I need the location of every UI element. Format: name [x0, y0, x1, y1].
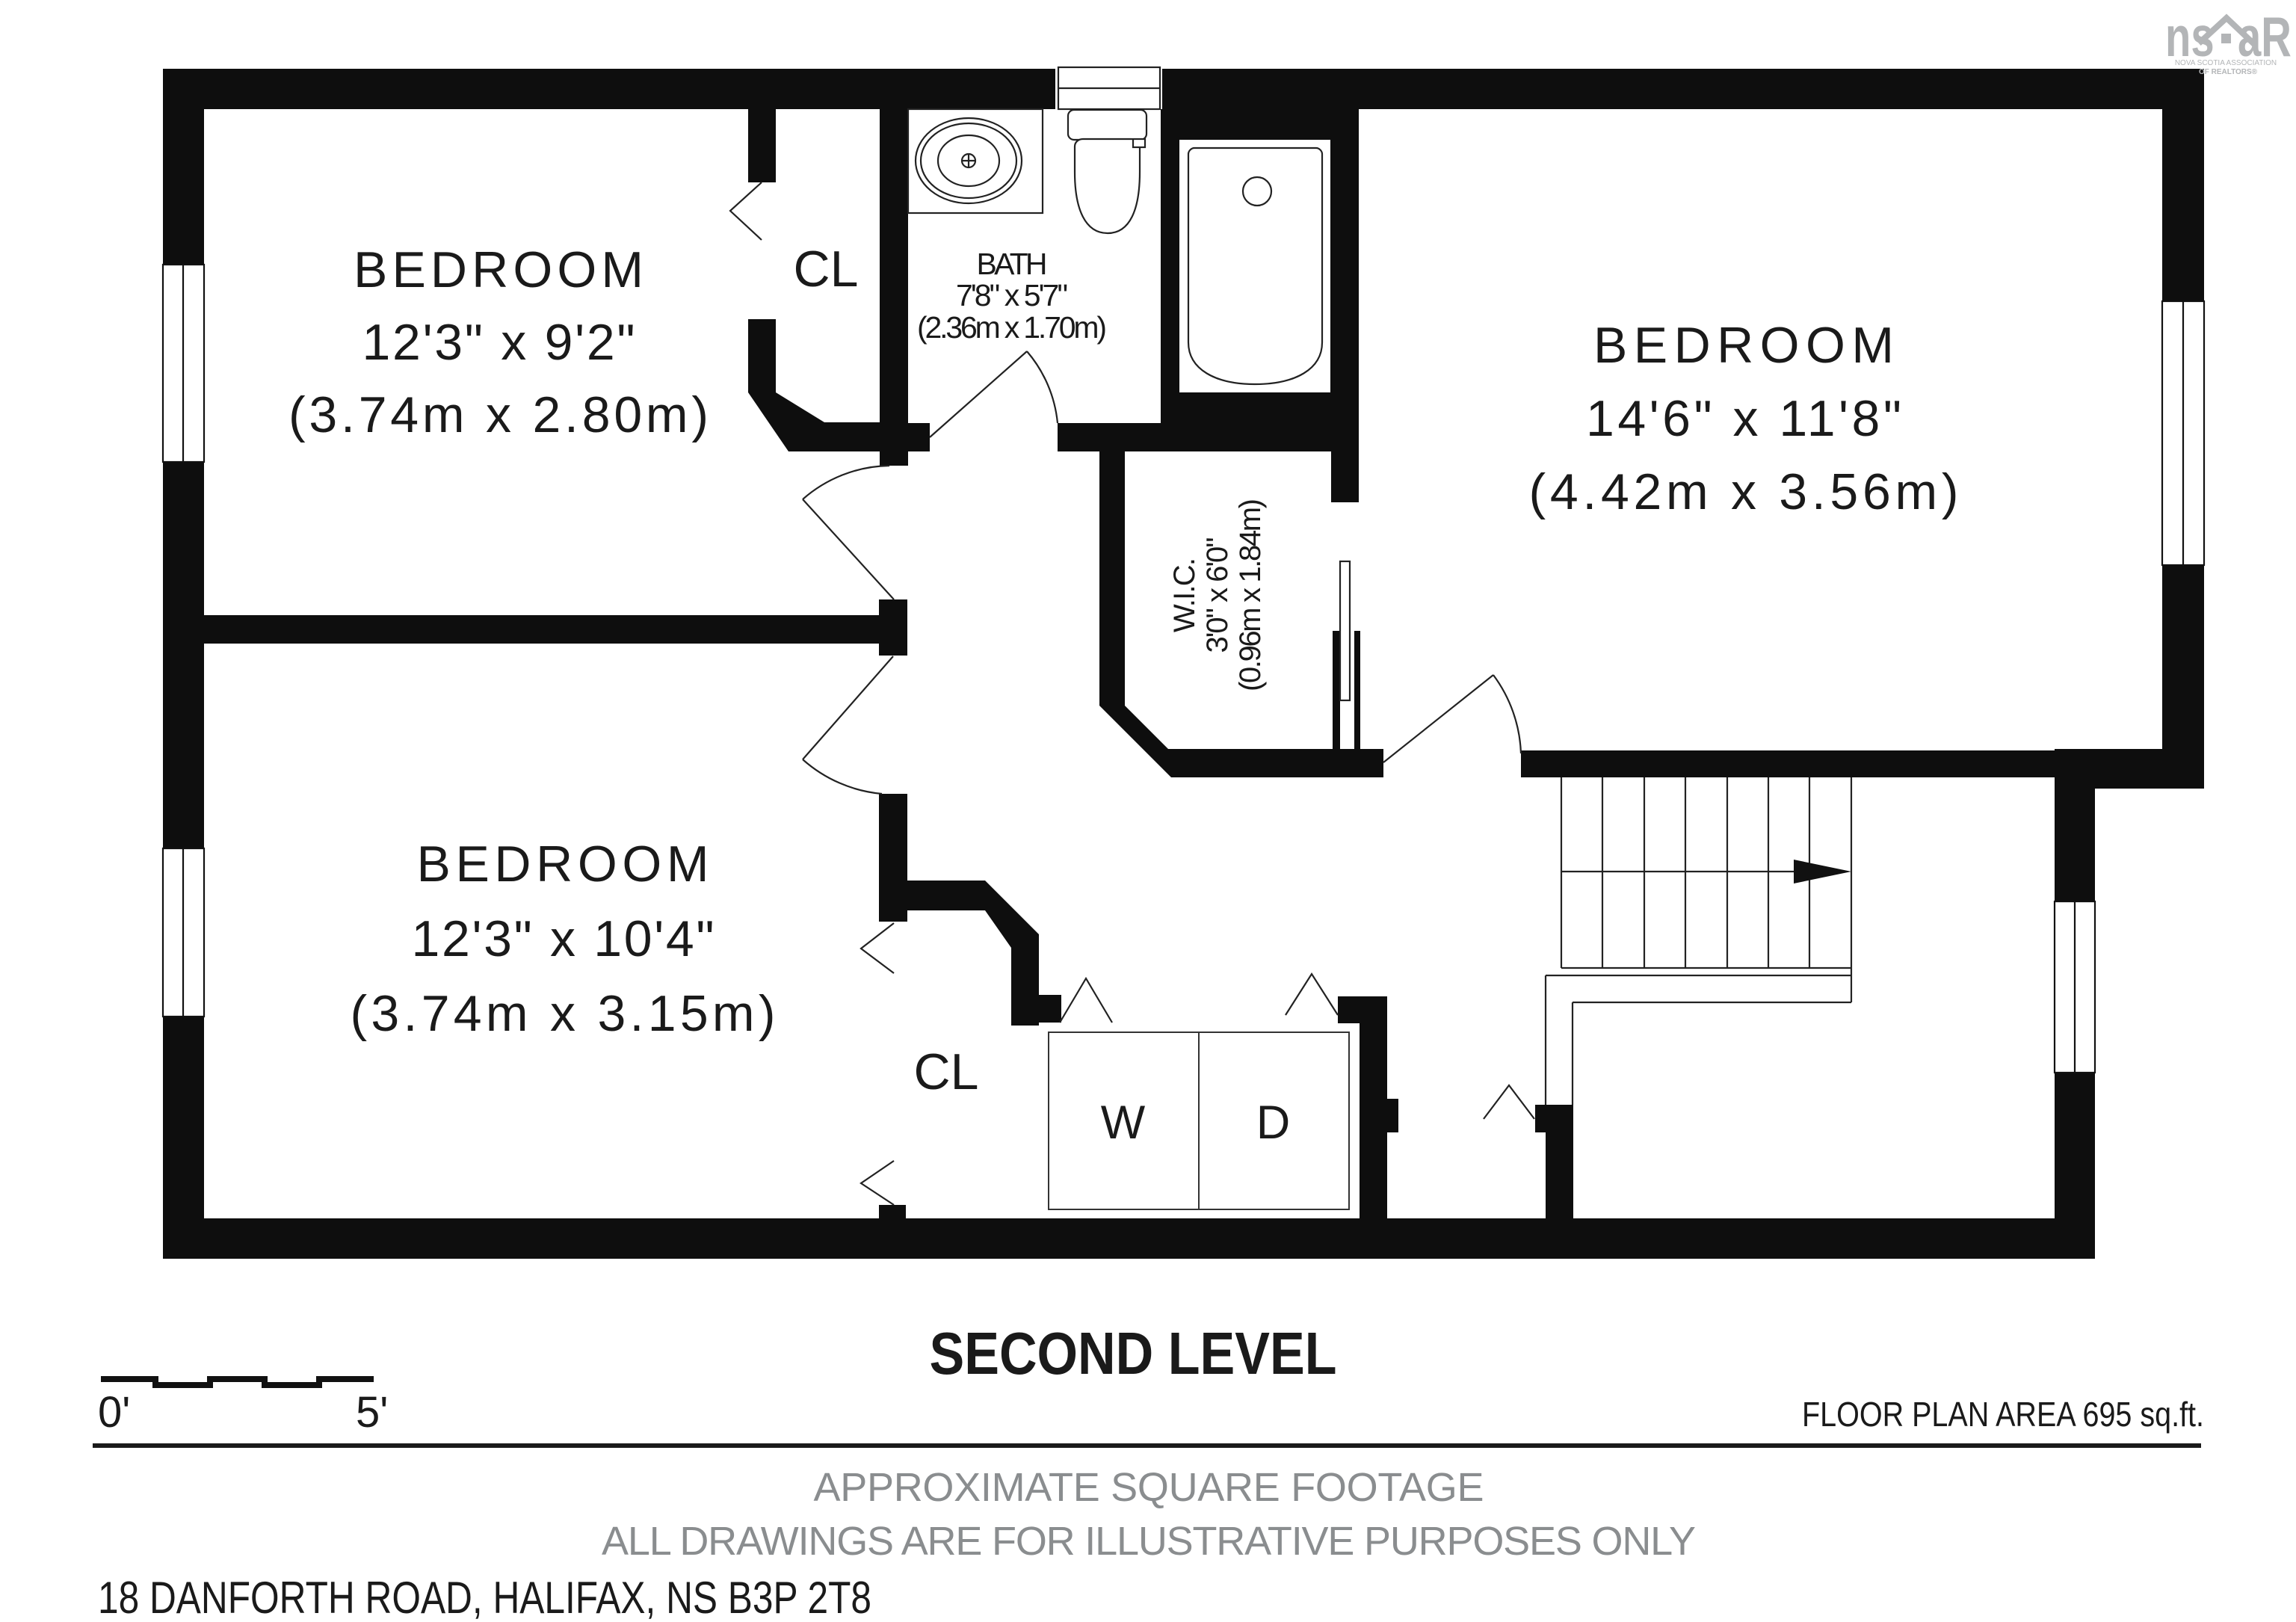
svg-text:FLOOR PLAN AREA 695 sq.ft.: FLOOR PLAN AREA 695 sq.ft. [1802, 1395, 2204, 1434]
svg-text:BEDROOM: BEDROOM [354, 241, 644, 298]
svg-text:3'0" x 6'0": 3'0" x 6'0" [1201, 537, 1234, 653]
svg-text:BEDROOM: BEDROOM [1593, 317, 1894, 374]
svg-text:(3.74m x 2.80m): (3.74m x 2.80m) [288, 386, 709, 443]
svg-text:W.I.C.: W.I.C. [1168, 558, 1201, 632]
svg-text:18 DANFORTH ROAD, HALIFAX, NS: 18 DANFORTH ROAD, HALIFAX, NS B3P 2T8 [98, 1573, 871, 1622]
svg-text:7'8" x 5'7": 7'8" x 5'7" [956, 278, 1068, 312]
svg-text:ALL DRAWINGS ARE FOR ILLUSTRAT: ALL DRAWINGS ARE FOR ILLUSTRATIVE PURPOS… [602, 1519, 1696, 1564]
svg-text:(0.96m x 1.84m): (0.96m x 1.84m) [1234, 499, 1267, 691]
svg-text:BATH: BATH [977, 247, 1048, 281]
svg-text:BEDROOM: BEDROOM [417, 836, 709, 892]
svg-text:5': 5' [356, 1388, 388, 1437]
svg-text:12'3" x 10'4": 12'3" x 10'4" [412, 910, 715, 967]
svg-text:(4.42m x 3.56m): (4.42m x 3.56m) [1529, 463, 1959, 520]
svg-text:NOVA SCOTIA ASSOCIATION: NOVA SCOTIA ASSOCIATION [2175, 59, 2277, 67]
svg-text:CL: CL [794, 241, 859, 297]
svg-text:OF REALTORS®: OF REALTORS® [2199, 68, 2258, 76]
svg-text:14'6" x 11'8": 14'6" x 11'8" [1586, 390, 1901, 447]
svg-text:(3.74m x 3.15m): (3.74m x 3.15m) [351, 985, 776, 1042]
svg-text:APPROXIMATE SQUARE FOOTAGE: APPROXIMATE SQUARE FOOTAGE [814, 1465, 1484, 1510]
svg-text:D: D [1256, 1097, 1291, 1149]
svg-text:SECOND LEVEL: SECOND LEVEL [930, 1320, 1337, 1387]
svg-text:0': 0' [98, 1388, 130, 1437]
svg-text:W: W [1101, 1097, 1146, 1149]
svg-text:CL: CL [914, 1043, 979, 1100]
svg-text:12'3" x 9'2": 12'3" x 9'2" [362, 314, 635, 371]
svg-text:(2.36m x 1.70m): (2.36m x 1.70m) [917, 310, 1107, 345]
